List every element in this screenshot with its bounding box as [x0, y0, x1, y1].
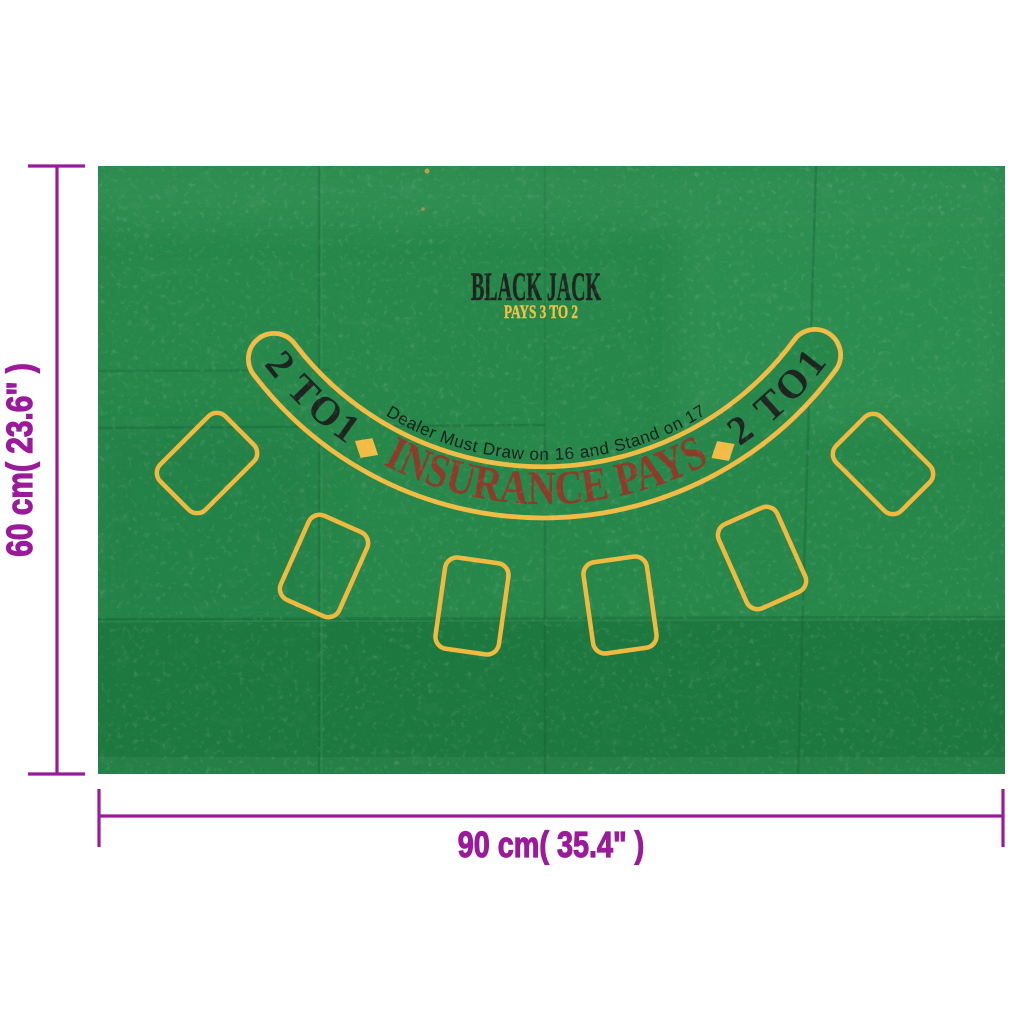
svg-text:90 cm( 35.4" ): 90 cm( 35.4" ) — [458, 824, 644, 865]
svg-text:60 cm( 23.6" ): 60 cm( 23.6" ) — [0, 363, 40, 557]
